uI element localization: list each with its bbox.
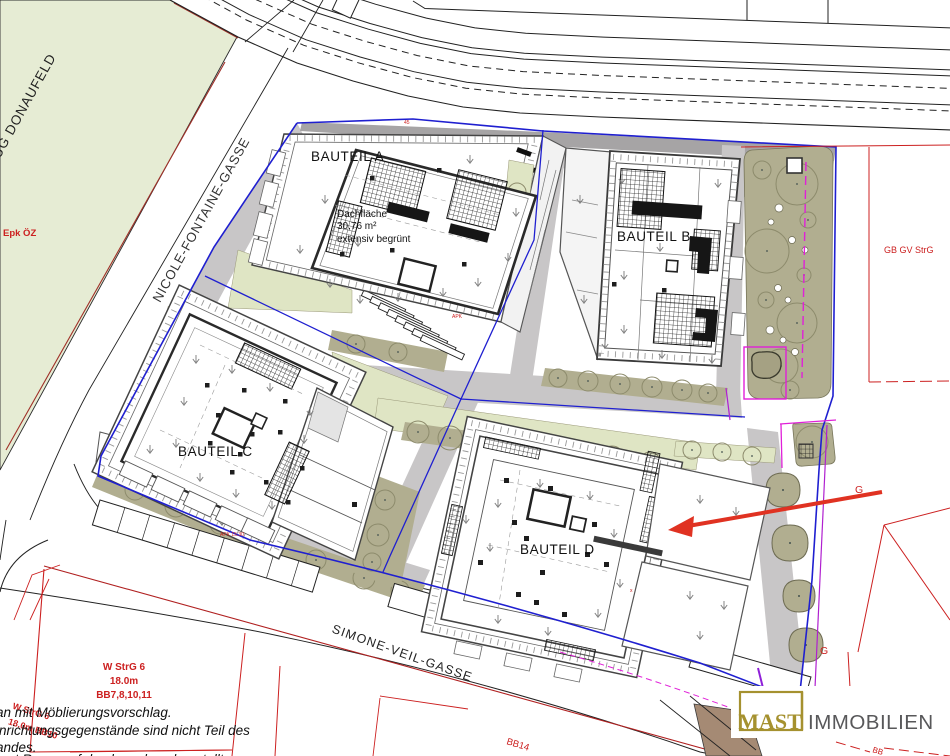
svg-text:45: 45 — [404, 120, 410, 126]
svg-text:BAUTEIL D: BAUTEIL D — [520, 542, 595, 557]
svg-text:Epk ÖZ: Epk ÖZ — [3, 228, 36, 239]
svg-text:MAST: MAST — [738, 709, 802, 734]
svg-text:BAUTEIL B: BAUTEIL B — [617, 229, 691, 244]
svg-text:BB7,8,10,11: BB7,8,10,11 — [96, 690, 152, 701]
svg-text:W StrG 6: W StrG 6 — [103, 662, 146, 673]
svg-text:Dachfläche: Dachfläche — [337, 209, 387, 220]
svg-text:APK: APK — [452, 314, 463, 320]
svg-text:an mit Möblierungsvorschlag.: an mit Möblierungsvorschlag. — [0, 705, 172, 720]
svg-text:extensiv begrünt: extensiv begrünt — [337, 234, 411, 245]
svg-text:inrichtungsgegenstände sind ni: inrichtungsgegenstände sind nicht Teil d… — [0, 723, 250, 738]
svg-text:BB: BB — [871, 745, 884, 756]
svg-text:G: G — [820, 645, 828, 657]
svg-text:IMMOBILIEN: IMMOBILIEN — [808, 711, 934, 734]
svg-text:30,76 m²: 30,76 m² — [337, 221, 377, 232]
svg-text:GB GV StrG: GB GV StrG — [884, 245, 934, 255]
svg-text:BAUTEIL C: BAUTEIL C — [178, 444, 253, 459]
svg-text:BAUTEIL A: BAUTEIL A — [311, 149, 384, 164]
svg-text:st Raum auf den lageplan abges: st Raum auf den lageplan abgestellt — [8, 752, 225, 756]
svg-text:18.0m: 18.0m — [110, 676, 138, 687]
svg-text:APK 15.30: APK 15.30 — [220, 532, 244, 538]
